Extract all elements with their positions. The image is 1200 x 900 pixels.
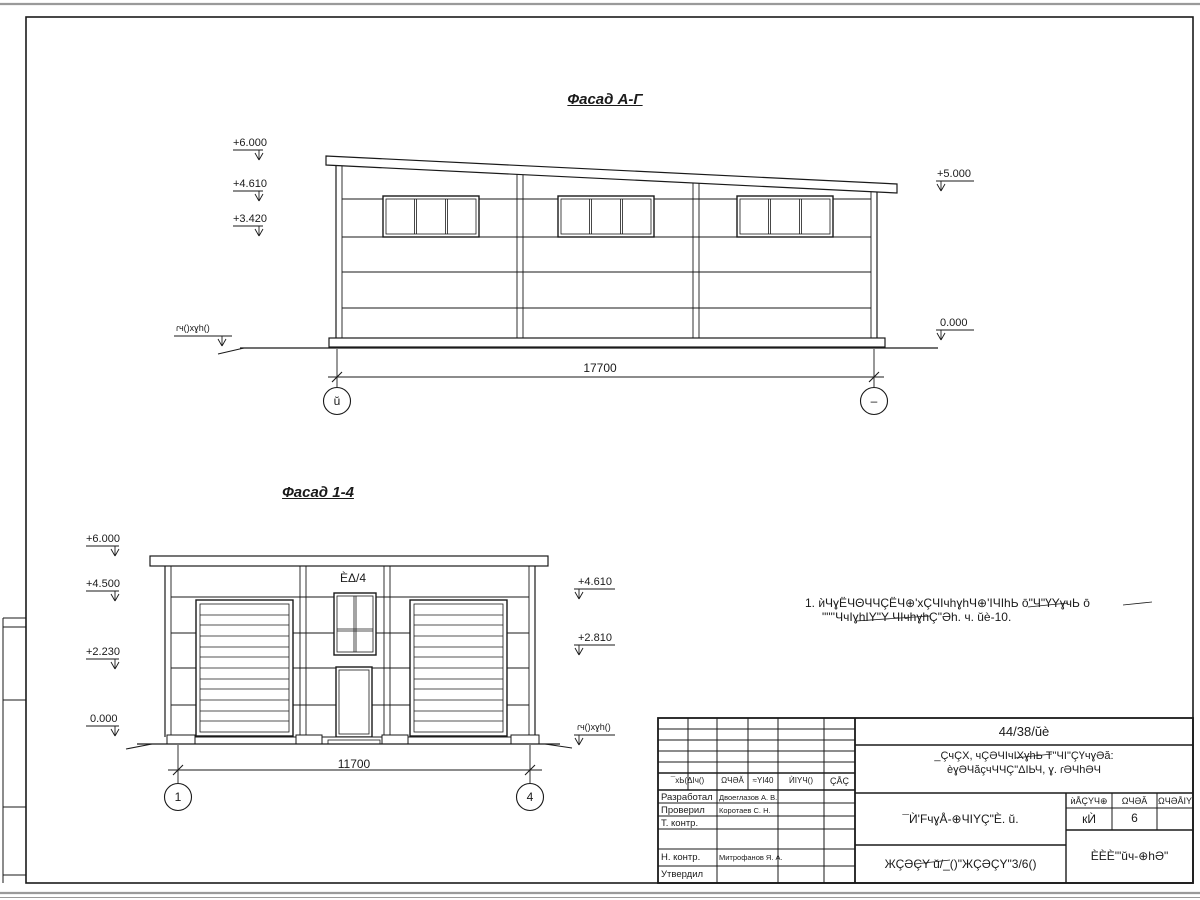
titleblock-col-header: ÇÅÇ (824, 777, 855, 786)
document-number: 44/38/ŭè (855, 725, 1193, 738)
note-line: 1. ѝЧɣЁЧΘЧЧÇЁЧ⊕'хÇЧIчhɣhЧ⊕'IЧIhЬ ō"Ч"ҮΥɣ… (805, 597, 1090, 609)
elevation-mark: +4.610 (578, 577, 612, 588)
drawing-title: ¯Ѝ'FчɣÅ-⊕ЧIΥÇ"È. ŭ. (855, 813, 1066, 825)
dimension-value: 17700 (570, 362, 630, 374)
elevation-mark: +3.420 (233, 214, 267, 225)
facade-ag-dimension (324, 349, 888, 415)
titleblock-name: Коротаев С. Н. (719, 807, 771, 815)
titleblock-col-header: ¯хЬ(ΔIч() (658, 777, 717, 785)
facade-14-dimension (165, 745, 544, 811)
stage-header: ΩЧƏĂ (1112, 797, 1157, 806)
roof-slab (150, 556, 548, 566)
elevation-mark: +5.000 (937, 169, 971, 180)
door (336, 667, 372, 737)
facade-14-title: Фасад 1-4 (258, 485, 378, 500)
plinth (329, 338, 885, 347)
titleblock-name: Двоеглазов А. В. (719, 794, 777, 802)
axis-marker-label: 4 (520, 791, 540, 803)
titleblock-role: Н. контр. (661, 853, 700, 863)
titleblock-col-header: ≈ΥI40 (748, 777, 778, 785)
elevation-mark: 0.000 (90, 714, 118, 725)
org-code: ЖÇƏÇΥ ŭ/_()"ЖÇƏÇΥ"3/6() (855, 858, 1066, 870)
titleblock-role: Утвердил (661, 870, 703, 880)
note-line: ""''ЧчIɣhIΥ"Υ ЧIчhɣhÇ"Əh. ч. ŭè-10. (822, 611, 1011, 623)
roller-gate-left (196, 600, 293, 736)
roof-fascia (326, 156, 897, 193)
facade-ag-title: Фасад А-Г (545, 92, 665, 107)
ground-level-label: ɾч()хɣh() (577, 723, 611, 732)
titleblock-role: Проверил (661, 806, 705, 816)
elevation-mark: +2.810 (578, 633, 612, 644)
titleblock-name: Митрофанов Я. А. (719, 854, 783, 862)
elevation-mark: 0.000 (940, 318, 968, 329)
ground-level-label: ɾч()хɣh() (176, 324, 210, 333)
axis-marker-label: – (864, 395, 884, 407)
elevation-mark: +2.230 (86, 647, 120, 658)
window-tag-label: ÈΔ/4 (328, 572, 378, 584)
titleblock-col-header: ЍIΥЧ() (778, 777, 824, 785)
facade-ag-elevation-marks (174, 150, 974, 346)
stage-header: ΩЧƏÅIΥ (1157, 797, 1193, 806)
drawing-sheet: Фасад А-Г +6.000 +4.610 +3.420 +5.000 0.… (0, 0, 1200, 900)
titleblock-col-header: ΩЧƏĂ (717, 777, 748, 785)
facade-ag-building (218, 156, 938, 354)
elevation-mark: +6.000 (233, 138, 267, 149)
sheet-number: 6 (1112, 812, 1157, 824)
elevation-mark: +6.000 (86, 534, 120, 545)
titleblock-role: Т. контр. (661, 819, 698, 829)
elevation-mark: +4.500 (86, 579, 120, 590)
axis-marker-label: 1 (168, 791, 188, 803)
small-window (334, 593, 376, 655)
side-stamp (3, 618, 26, 883)
project-description: _ÇчÇХ, чÇƏЧIчIХɣhЬ Т"ЧI"ÇҮчɣƏă: (855, 751, 1193, 762)
roller-gate-right (410, 600, 507, 736)
titleblock-role: Разработал (661, 793, 713, 803)
stage-header: ѝÅÇΥЧ⊕ (1066, 797, 1112, 806)
project-description: èɣƏЧăçчЧЧÇ"ΔIЬЧ, ɣ. ɾƏЧhƏЧ (855, 765, 1193, 776)
org-name: ÈÈÈ'"ŭч-⊕hƏ" (1066, 850, 1193, 862)
dimension-value: 11700 (324, 758, 384, 770)
window-strip (383, 196, 833, 237)
elevation-mark: +4.610 (233, 179, 267, 190)
stage-value: кЍ (1066, 813, 1112, 825)
axis-marker-label: ŭ (327, 395, 347, 407)
